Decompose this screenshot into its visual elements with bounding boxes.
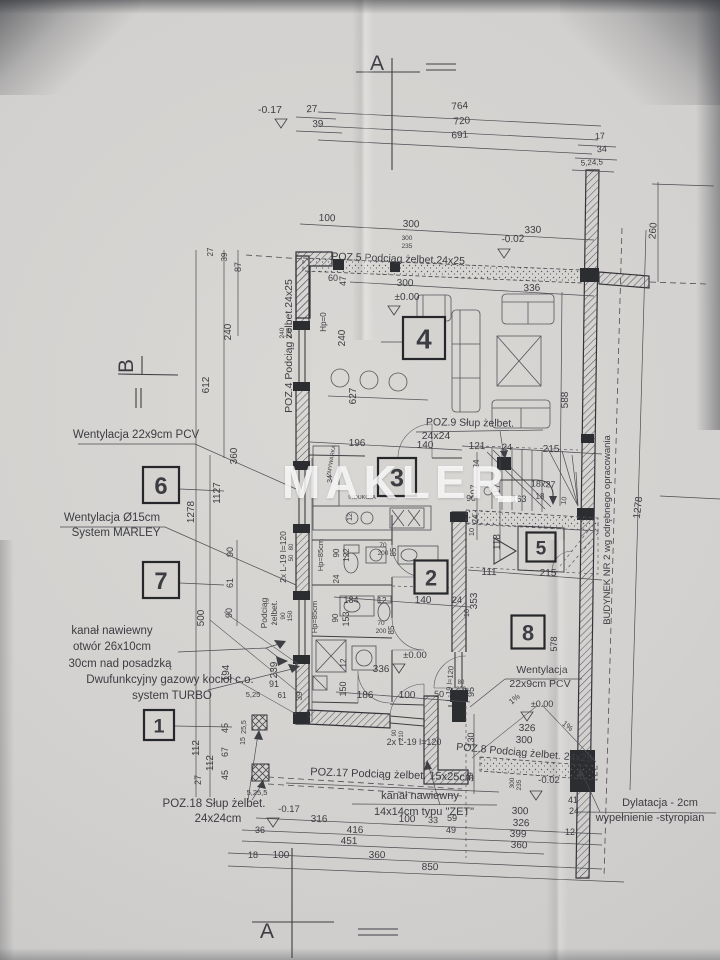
- dimension-label: 24: [471, 514, 480, 523]
- dimension-label: 70: [379, 542, 387, 549]
- dimension-label: 18x27: [531, 478, 556, 489]
- dimension-label: 17: [595, 131, 606, 142]
- dimension-label: 235: [516, 779, 523, 790]
- dimension-label: 90: [224, 608, 234, 618]
- room-number: 1: [153, 716, 164, 738]
- dimension-label: 150: [287, 610, 294, 621]
- dimension-label: 200: [378, 550, 389, 557]
- dimension-label: 67: [220, 747, 230, 757]
- dimension-label: ±0.00: [403, 650, 427, 661]
- dimension-label: 326: [513, 818, 530, 830]
- photo-edge-shadow: [0, 540, 14, 960]
- dimension-label: 5,25,5: [247, 788, 268, 797]
- dimension-label: 12: [347, 513, 354, 521]
- annotation-label: POZ.18 Słup żelbet.: [163, 798, 266, 810]
- dimension-label: 15: [240, 737, 247, 745]
- dimension-label: 27: [306, 104, 318, 116]
- dimension-label: 627: [348, 387, 359, 404]
- dimension-label: 1278: [632, 496, 646, 520]
- dimension-label: 1278: [186, 500, 197, 523]
- dimension-label: 612: [201, 376, 212, 393]
- dimension-label: 25,5: [241, 720, 248, 734]
- room-number: 2: [425, 565, 437, 590]
- dimension-label: 111: [481, 567, 497, 578]
- dimension-label: 95: [466, 687, 476, 697]
- dimension-label: 121: [469, 441, 486, 452]
- dimension-label: 12: [339, 658, 348, 667]
- dimension-label: 90: [331, 613, 340, 622]
- dimension-label: 691: [451, 129, 469, 141]
- dimension-label: 184: [343, 595, 358, 605]
- dimension-label: 39: [312, 119, 324, 131]
- annotation-label: kanał nawiewny: [71, 625, 152, 637]
- dimension-label: 2x L-19 l=120: [278, 531, 288, 583]
- watermark-underscore: [498, 496, 518, 502]
- dimension-label: 330: [524, 225, 541, 237]
- dimension-label: 200: [376, 628, 387, 635]
- stool: [360, 371, 378, 389]
- dimension-label: 47: [338, 276, 348, 286]
- dimension-label: 1127: [212, 482, 223, 504]
- room-number: 6: [154, 473, 167, 500]
- annotation-label: Wentylacja 22x9cm PCV: [73, 429, 200, 441]
- annotation-label: POZ.17 Podciąg żelbet. 15x25cm: [310, 766, 474, 784]
- annotation-label: 14x14cm typu "ZET": [374, 806, 474, 818]
- dimension-label: 850: [422, 862, 439, 873]
- dimension-label: 61: [278, 691, 287, 700]
- window-gap: [294, 600, 311, 655]
- dimension-label: 588: [560, 391, 571, 408]
- photo-corner-shadow: [0, 0, 140, 95]
- dimension-label: 360: [511, 840, 528, 852]
- sink-bowl: [361, 512, 373, 524]
- dimension-label: 45: [220, 723, 230, 733]
- dimension-label: 87: [233, 262, 243, 272]
- dimension-label: 764: [451, 100, 469, 112]
- dimension-label: 24: [452, 595, 462, 605]
- paper-crease: [352, 0, 374, 340]
- dimension-label: 235: [402, 243, 413, 250]
- dimension-label: 50: [434, 689, 444, 699]
- dimension-label: 61: [225, 578, 235, 588]
- floor-plan-photo: 12345678 -0.17273976472069117345,24,5100…: [0, 0, 720, 960]
- annotation-label: system TURBO: [132, 690, 212, 702]
- annotation-label: wypełnienie -styropian: [595, 812, 705, 824]
- dimension-label: Hp=85cm: [316, 539, 325, 571]
- dimension-label: 39: [295, 691, 304, 700]
- photo-edge-shadow: [0, 0, 720, 14]
- dimension-label: 720: [453, 115, 471, 127]
- dimension-label: 10: [462, 609, 471, 617]
- dimension-label: 300: [516, 735, 533, 747]
- dimension-label: 90: [225, 547, 235, 557]
- dimension-label: 90: [280, 612, 287, 620]
- dimension-label: 80: [458, 680, 465, 686]
- dimension-label: 24: [502, 442, 512, 452]
- room-number: 4: [416, 324, 432, 355]
- dimension-label: 5,25: [246, 690, 261, 699]
- annotation-label: 30cm nad posadzką: [69, 658, 173, 670]
- dimension-label: 353: [469, 592, 480, 609]
- dimension-label: 100: [319, 213, 336, 225]
- photo-edge-shadow: [0, 948, 720, 960]
- dimension-label: 18: [536, 492, 545, 501]
- dimension-label: 153: [341, 611, 351, 626]
- dimension-label: 240: [223, 323, 234, 340]
- dimension-label: 360: [369, 850, 386, 861]
- dimension-label: 112: [205, 755, 216, 771]
- dimension-label: 10: [560, 496, 568, 505]
- dimension-label: 12: [378, 596, 387, 605]
- annotation-label: Dylatacja - 2cm: [622, 797, 698, 809]
- photo-edge-shadow: [696, 0, 720, 430]
- sofa: [452, 310, 480, 412]
- dimension-label: 36: [255, 825, 265, 835]
- annotation-label: otwór 26x10cm: [73, 641, 151, 653]
- dimension-label: 100: [399, 690, 416, 701]
- dimension-label: 140: [415, 595, 432, 606]
- dimension-label: 240: [337, 329, 348, 346]
- dimension-label: 300: [403, 219, 420, 231]
- dimension-label: 150: [338, 681, 348, 696]
- dimension-label: 49: [446, 825, 456, 835]
- dimension-label: 336: [523, 283, 540, 295]
- dimension-label: 2x L-19 l=120: [387, 737, 442, 747]
- dimension-label: 112: [191, 740, 202, 756]
- dimension-label: 451: [341, 836, 358, 847]
- dimension-label: 70: [377, 620, 385, 627]
- dimension-label: 239: [269, 661, 280, 678]
- column-poz18: [252, 715, 267, 730]
- dimension-label: 416: [347, 825, 364, 836]
- dimension-label: 300: [397, 278, 414, 289]
- annotation-label: Wentylacja Ø15cm: [64, 512, 160, 524]
- dimension-label: 500: [196, 609, 207, 626]
- dimension-label: ±0.00: [395, 292, 420, 303]
- paper-crease: [546, 540, 568, 960]
- dimension-label: 1%: [507, 692, 522, 706]
- dimension-label: -0.02: [501, 234, 525, 246]
- dimension-label: Podciąg: [259, 597, 269, 628]
- dimension-label: 34: [597, 144, 608, 155]
- annotation-label: B: [115, 359, 138, 373]
- dimension-label: 45: [220, 770, 230, 780]
- dimension-label: 122: [342, 548, 351, 562]
- toilet-bowl: [378, 603, 390, 621]
- dimension-label: 186: [357, 690, 374, 701]
- dimension-label: 326: [519, 723, 536, 735]
- dimension-label: żelbet.: [269, 600, 279, 625]
- dimension-label: 196: [349, 438, 366, 449]
- dimension-label: 50: [289, 554, 295, 561]
- annotation-label: BUDYNEK NR 2 wg odrębnego opracowania: [602, 434, 613, 624]
- dimension-label: 90: [392, 729, 398, 736]
- dimension-label: -0.17: [278, 804, 300, 815]
- dimension-label: 316: [311, 814, 328, 825]
- kitchen-counter: [313, 506, 431, 530]
- annotation-label: 24x24cm: [195, 813, 242, 825]
- dimension-label: 300: [509, 777, 516, 788]
- annotation-label: POZ.9 Słup żelbet.: [426, 416, 514, 430]
- room-number: 8: [522, 620, 534, 645]
- watermark: MAKLER: [282, 455, 509, 509]
- dimension-label: 91: [269, 679, 279, 689]
- dimension-label: 27: [193, 775, 203, 785]
- annotation-label: A: [260, 920, 274, 943]
- annotation-label: 24x24: [422, 430, 451, 442]
- dimension-label: 60: [328, 273, 338, 283]
- dimension-label: 100: [273, 850, 290, 861]
- table-edge: [328, 396, 428, 400]
- dimension-label: 399: [510, 829, 527, 841]
- dimension-label: 90: [332, 548, 341, 557]
- room-number: 7: [154, 568, 167, 595]
- column-poz18: [252, 764, 269, 781]
- dimension-label: 24: [332, 574, 341, 583]
- dimension-label: 215: [543, 444, 560, 455]
- dimension-label: 5,24,5: [581, 157, 604, 167]
- dimension-label: 300: [512, 806, 529, 818]
- dimension-label: 27: [206, 247, 215, 256]
- dimension-label: -0.17: [258, 104, 282, 116]
- dimension-label: 80: [289, 543, 295, 550]
- dimension-label: 300: [402, 235, 413, 242]
- dimension-label: 18: [248, 850, 258, 860]
- dimension-label: 336: [373, 664, 390, 675]
- dimension-label: 85: [387, 625, 396, 634]
- stool: [389, 373, 407, 391]
- dimension-label: 360: [229, 447, 240, 464]
- dimension-label: 39: [220, 252, 229, 261]
- dimension-label: 41: [568, 795, 578, 805]
- window-gap: [294, 330, 311, 382]
- annotation-label: System MARLEY: [72, 527, 161, 539]
- dimension-label: Hp=85cm: [310, 601, 319, 633]
- dimension-label: 118: [492, 534, 503, 550]
- annotation-label: POZ.4 Podciąg żelbet.24x25: [283, 279, 295, 413]
- annotation-label: Dwufunkcyjny gazowy kocioł c.o.: [86, 674, 253, 686]
- dimension-label: 260: [647, 222, 659, 240]
- dimension-label: 10: [467, 528, 476, 536]
- stool: [331, 369, 349, 387]
- annotation-label: kanał nawiewny: [381, 790, 459, 802]
- dimension-label: 85: [389, 547, 398, 556]
- dimension-label: Hp=0: [319, 312, 328, 332]
- dimension-label: 24: [569, 806, 579, 816]
